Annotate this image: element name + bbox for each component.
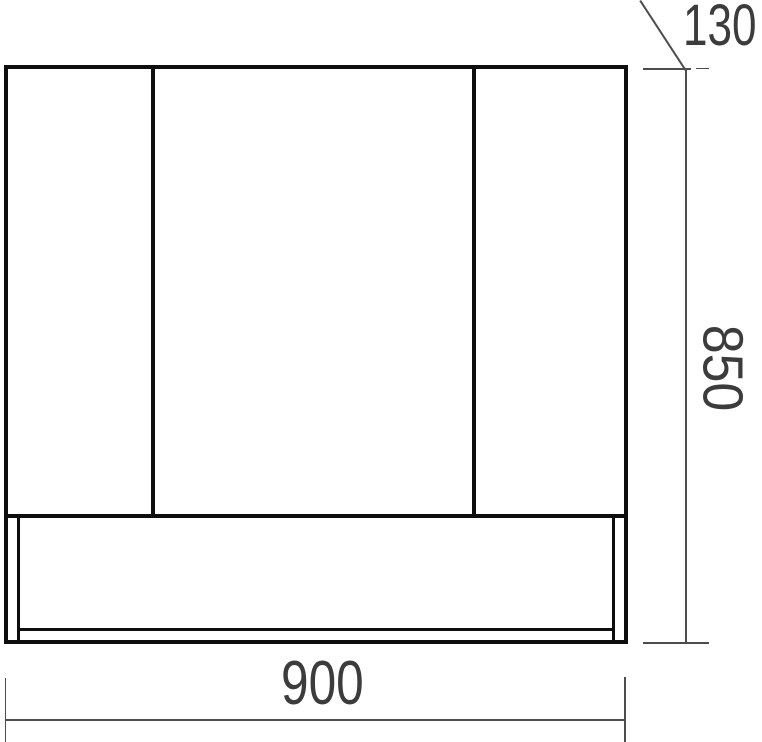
cabinet-bottom-edge: [4, 640, 628, 644]
dimension-label-width: 900: [281, 653, 364, 715]
height-dimension-tick-top-dash: [696, 68, 709, 70]
body-panel-separator: [4, 514, 628, 518]
cabinet-top-edge: [4, 65, 628, 69]
height-dimension-tick-bottom: [643, 642, 709, 644]
door-divider-right: [472, 66, 476, 517]
height-dimension-line: [685, 69, 687, 643]
width-dimension-tick-left: [5, 678, 7, 742]
width-dimension-line: [5, 719, 625, 721]
cabinet-right-edge: [624, 65, 628, 644]
cabinet-left-edge: [4, 65, 8, 644]
dimension-label-top-detail: 130: [683, 0, 757, 55]
panel-inner-left-line: [17, 517, 20, 641]
top-detail-leader-line: [640, 0, 687, 70]
door-divider-left: [151, 66, 155, 517]
width-dimension-tick-right: [624, 677, 626, 742]
panel-inner-right-line: [612, 517, 615, 641]
panel-inner-bottom-line: [19, 628, 615, 631]
technical-drawing-canvas: 130 850 900: [0, 0, 762, 742]
dimension-label-height: 850: [694, 325, 751, 412]
